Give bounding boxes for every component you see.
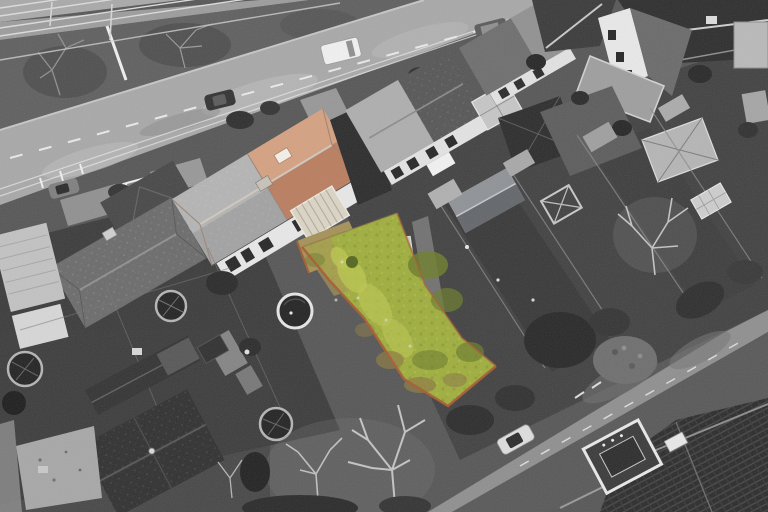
aerial-property-photo	[0, 0, 768, 512]
film-grain-overlay	[0, 0, 768, 512]
aerial-photo-canvas	[0, 0, 768, 512]
